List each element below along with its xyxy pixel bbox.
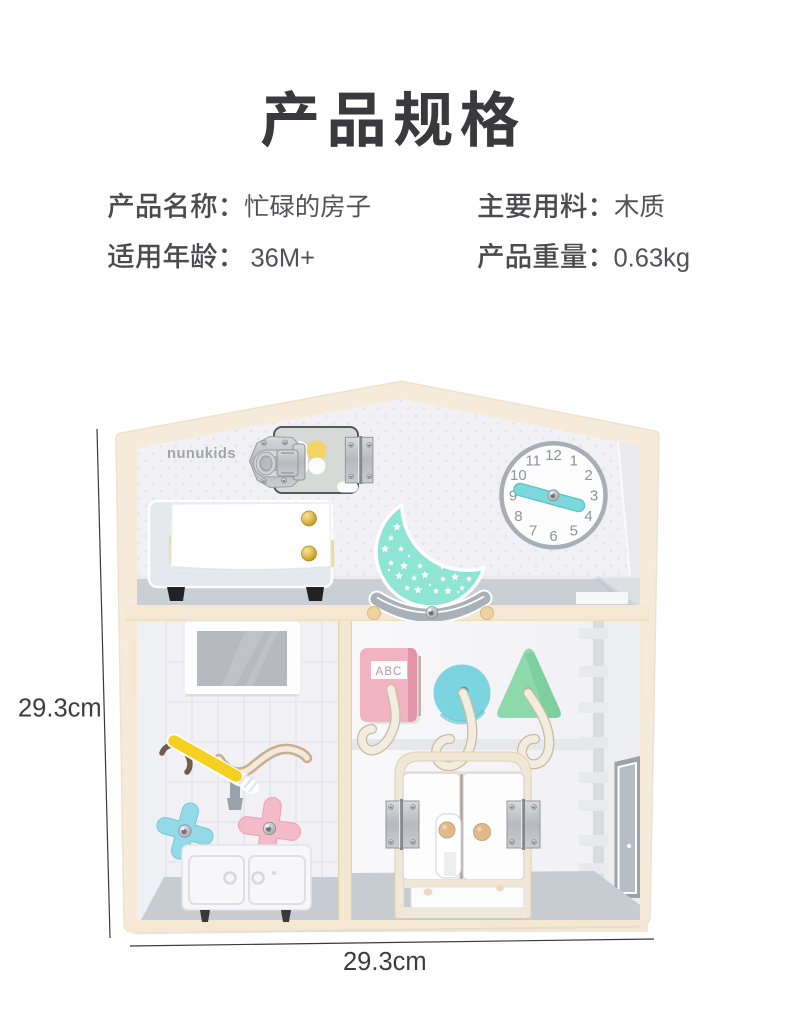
- svg-text:4: 4: [584, 508, 592, 525]
- svg-text:8: 8: [514, 508, 522, 525]
- svg-text:29.3cm: 29.3cm: [343, 948, 427, 976]
- svg-text:12: 12: [545, 447, 562, 464]
- svg-text:5: 5: [570, 523, 578, 540]
- svg-text:nunukids: nunukids: [167, 446, 236, 462]
- svg-text:3: 3: [590, 488, 598, 505]
- svg-text:10: 10: [510, 467, 527, 484]
- svg-text:2: 2: [584, 467, 592, 484]
- svg-text:6: 6: [549, 528, 557, 545]
- svg-text:36M+: 36M+: [251, 245, 316, 273]
- svg-text:0.63kg: 0.63kg: [614, 245, 691, 273]
- svg-text:ABC: ABC: [376, 666, 403, 678]
- svg-text:11: 11: [525, 452, 541, 469]
- svg-text:29.3cm: 29.3cm: [18, 695, 102, 723]
- svg-text:7: 7: [529, 523, 537, 540]
- svg-text:1: 1: [570, 452, 578, 469]
